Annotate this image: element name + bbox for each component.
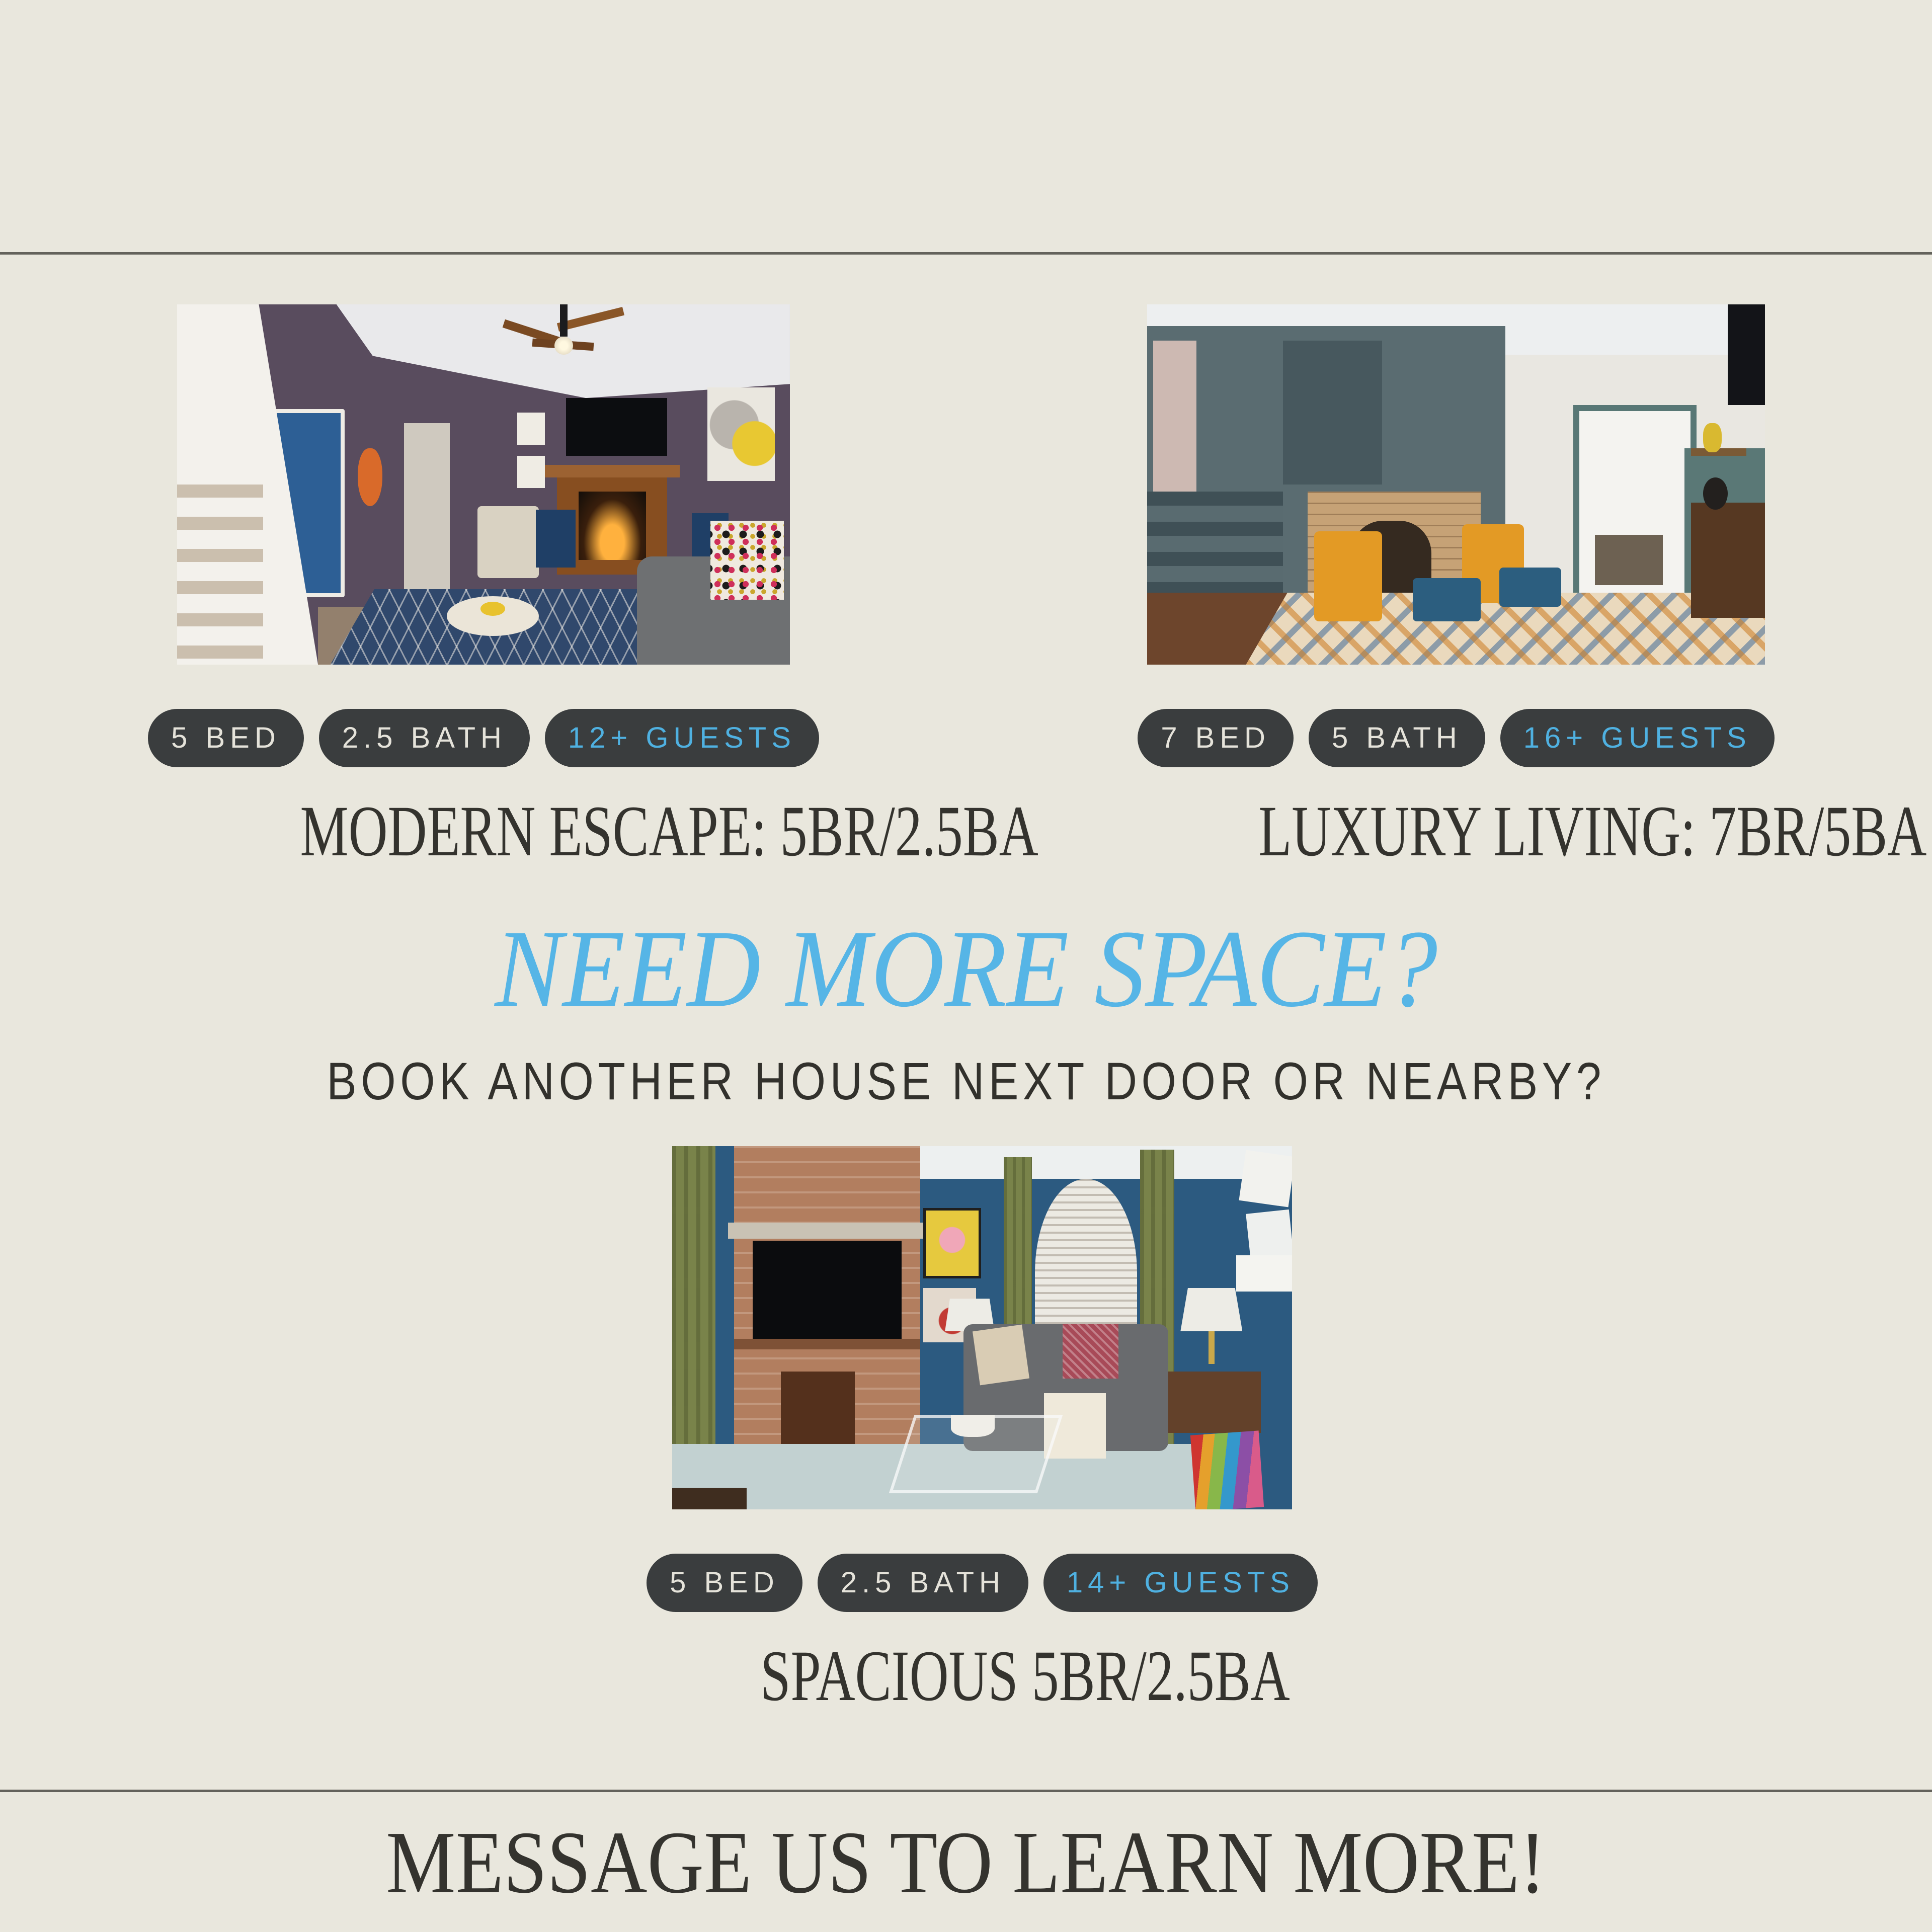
photo3-table-lamp [1180, 1288, 1242, 1332]
listing-title-luxury-living: LUXURY LIVING: 7BR/5BA [1147, 795, 1765, 868]
photo3-lamp-stem [1209, 1331, 1215, 1364]
photo2-cabinet-shadow [1283, 341, 1382, 485]
photo3-side-table [1168, 1372, 1261, 1433]
photo3-colorful-cube [1190, 1431, 1264, 1509]
photo1-wall-guitar [358, 448, 382, 506]
photo1-stair-steps [177, 485, 263, 665]
photo3-pillow [973, 1325, 1029, 1386]
listing-photo-modern-escape [177, 304, 790, 665]
badge-row-modern-escape: 5 BED 2.5 BATH 12+ GUESTS [148, 709, 819, 767]
footer-message: MESSAGE US TO LEARN MORE! [0, 1816, 1932, 1910]
badge-row-luxury-living: 7 BED 5 BATH 16+ GUESTS [1138, 709, 1774, 767]
listing-spacious: 5 BED 2.5 BATH 14+ GUESTS SPACIOUS 5BR/2… [672, 1146, 1292, 1713]
photo3-hearth-shelf [734, 1339, 920, 1350]
guests-badge: 14+ GUESTS [1043, 1554, 1318, 1612]
bottom-divider-line [0, 1790, 1932, 1792]
photo3-pop-art [923, 1208, 981, 1278]
guests-badge: 16+ GUESTS [1500, 709, 1775, 767]
photo1-armchair [477, 506, 539, 578]
listing-photo-spacious [672, 1146, 1292, 1509]
photo2-yellow-chair [1314, 531, 1382, 621]
listing-modern-escape: 5 BED 2.5 BATH 12+ GUESTS MODERN ESCAPE:… [177, 304, 790, 868]
photo1-small-art [517, 456, 545, 488]
photo1-framed-art [707, 387, 775, 481]
photo2-window [1153, 341, 1196, 514]
photo1-small-art [517, 413, 545, 445]
top-divider-line [0, 252, 1932, 255]
photo1-fan-stem [560, 304, 568, 337]
photo1-lemon-bowl [480, 602, 505, 616]
bath-badge: 2.5 BATH [319, 709, 530, 767]
photo2-blue-ottoman [1413, 578, 1481, 621]
bed-badge: 5 BED [647, 1554, 802, 1612]
bath-badge: 2.5 BATH [818, 1554, 1028, 1612]
badge-row-spacious: 5 BED 2.5 BATH 14+ GUESTS [647, 1554, 1318, 1612]
listing-title-spacious: SPACIOUS 5BR/2.5BA [672, 1640, 1292, 1713]
guests-badge: 12+ GUESTS [545, 709, 819, 767]
photo2-yellow-vase [1703, 423, 1722, 452]
photo2-sideboard [1691, 503, 1765, 618]
photo1-firebox [579, 492, 646, 560]
photo1-dotted-pillow [710, 521, 784, 600]
photo2-blue-ottoman [1499, 568, 1561, 607]
photo2-corner-tv [1728, 304, 1765, 405]
subheadline: BOOK ANOTHER HOUSE NEXT DOOR OR NEARBY? [0, 1054, 1932, 1109]
photo3-white-wall-shelf [1236, 1255, 1292, 1292]
photo3-wood-floor [672, 1488, 747, 1509]
photo3-white-wall-shelf [1239, 1150, 1292, 1207]
photo1-tv [566, 398, 667, 456]
headline: NEED MORE SPACE? [0, 911, 1932, 1027]
photo1-fan-light [554, 337, 573, 355]
photo3-firebox [781, 1372, 855, 1452]
photo3-fruit-bowl [951, 1415, 994, 1436]
photo3-tv [753, 1241, 902, 1339]
photo2-dining-table [1595, 535, 1663, 585]
listing-luxury-living: 7 BED 5 BATH 16+ GUESTS LUXURY LIVING: 7… [1147, 304, 1765, 868]
bed-badge: 5 BED [148, 709, 304, 767]
photo3-mantel [728, 1223, 926, 1239]
photo3-green-curtain [672, 1146, 715, 1495]
bath-badge: 5 BATH [1309, 709, 1485, 767]
photo1-mantel [545, 465, 680, 477]
photo1-navy-cabinet [536, 510, 576, 568]
listing-photo-luxury-living [1147, 304, 1765, 665]
photo2-dark-vase [1703, 477, 1728, 510]
bed-badge: 7 BED [1138, 709, 1294, 767]
photo3-pillow [1063, 1324, 1118, 1379]
listing-title-modern-escape: MODERN ESCAPE: 5BR/2.5BA [177, 795, 790, 868]
